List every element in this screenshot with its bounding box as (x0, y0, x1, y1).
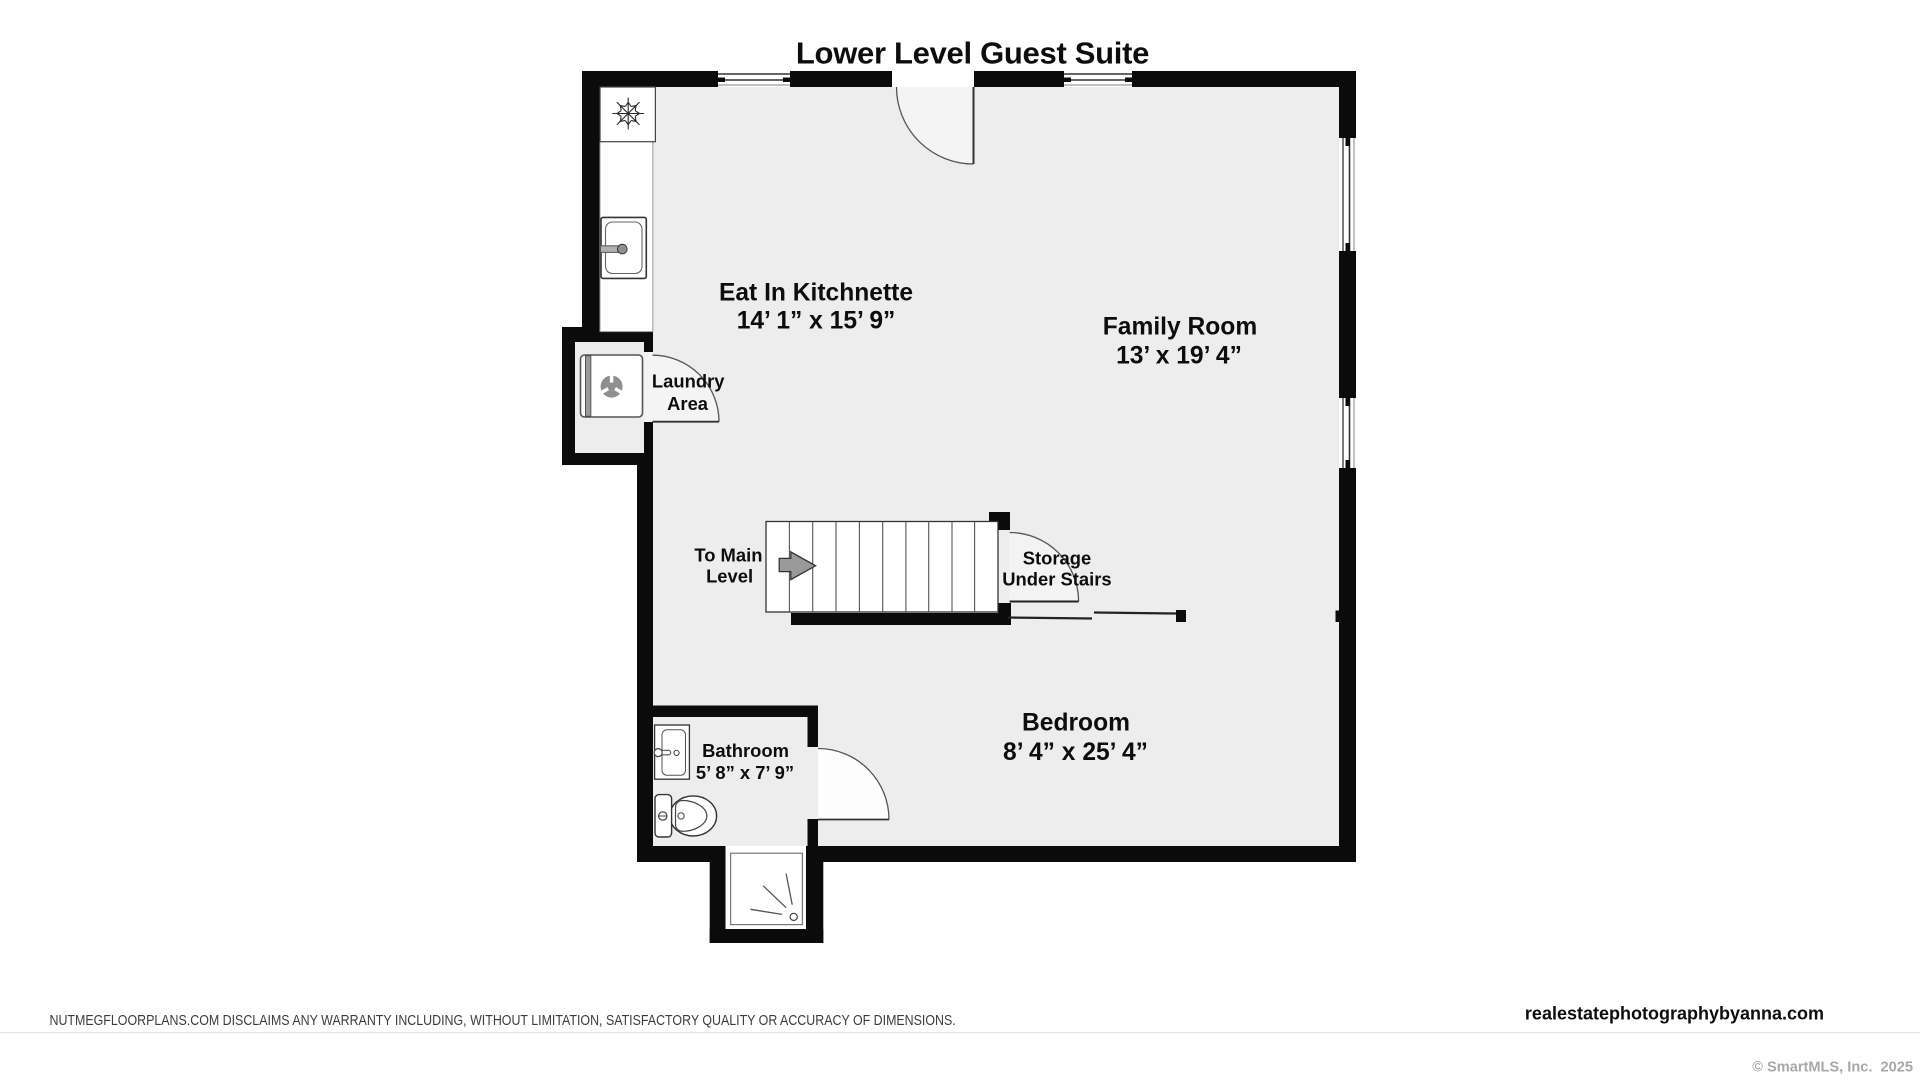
svg-text:To Main: To Main (694, 544, 762, 565)
svg-text:Lower Level Guest Suite: Lower Level Guest Suite (796, 36, 1149, 71)
svg-text:Laundry: Laundry (652, 371, 725, 392)
svg-text:Bedroom: Bedroom (1022, 710, 1130, 737)
svg-text:Bathroom: Bathroom (702, 740, 789, 761)
svg-text:13’ x 19’ 4”: 13’ x 19’ 4” (1116, 343, 1242, 370)
svg-text:14’ 1” x 15’ 9”: 14’ 1” x 15’ 9” (737, 308, 896, 335)
svg-text:5’ 8” x 7’ 9”: 5’ 8” x 7’ 9” (696, 762, 794, 783)
svg-text:8’ 4” x 25’ 4”: 8’ 4” x 25’ 4” (1003, 739, 1148, 766)
svg-text:Level: Level (706, 566, 753, 587)
svg-text:© SmartMLS, Inc. 2025: © SmartMLS, Inc. 2025 (1752, 1060, 1913, 1076)
svg-text:realestatephotographybyanna.co: realestatephotographybyanna.com (1525, 1004, 1824, 1024)
svg-text:NUTMEGFLOORPLANS.COM DISCLAIMS: NUTMEGFLOORPLANS.COM DISCLAIMS ANY WARRA… (50, 1012, 956, 1028)
svg-text:Storage: Storage (1023, 548, 1091, 569)
svg-text:Eat In Kitchnette: Eat In Kitchnette (719, 280, 913, 307)
svg-text:Family Room: Family Room (1103, 313, 1257, 340)
svg-text:Under Stairs: Under Stairs (1002, 569, 1111, 590)
svg-text:Area: Area (667, 393, 709, 414)
